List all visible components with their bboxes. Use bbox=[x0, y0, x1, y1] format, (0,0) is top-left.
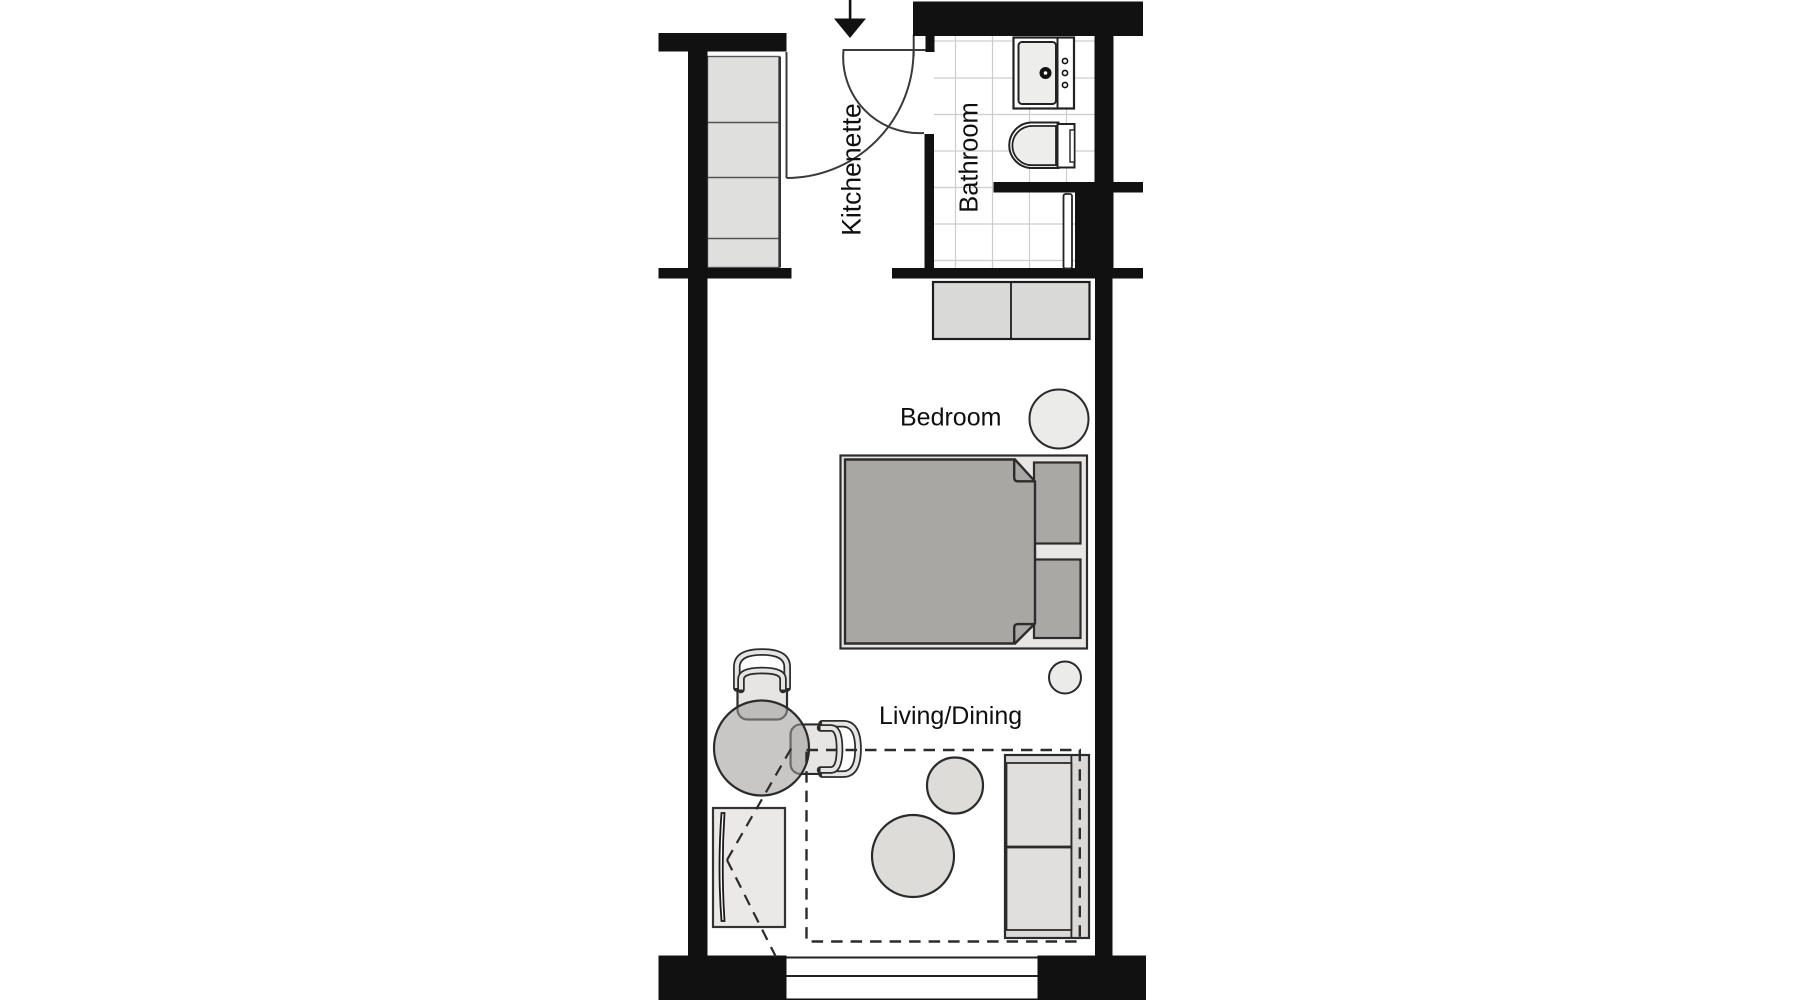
svg-text:Kitchenette: Kitchenette bbox=[837, 103, 867, 236]
svg-text:Living/Dining: Living/Dining bbox=[879, 702, 1022, 730]
svg-text:Bathroom: Bathroom bbox=[956, 102, 984, 213]
svg-text:Bedroom: Bedroom bbox=[900, 404, 1001, 432]
